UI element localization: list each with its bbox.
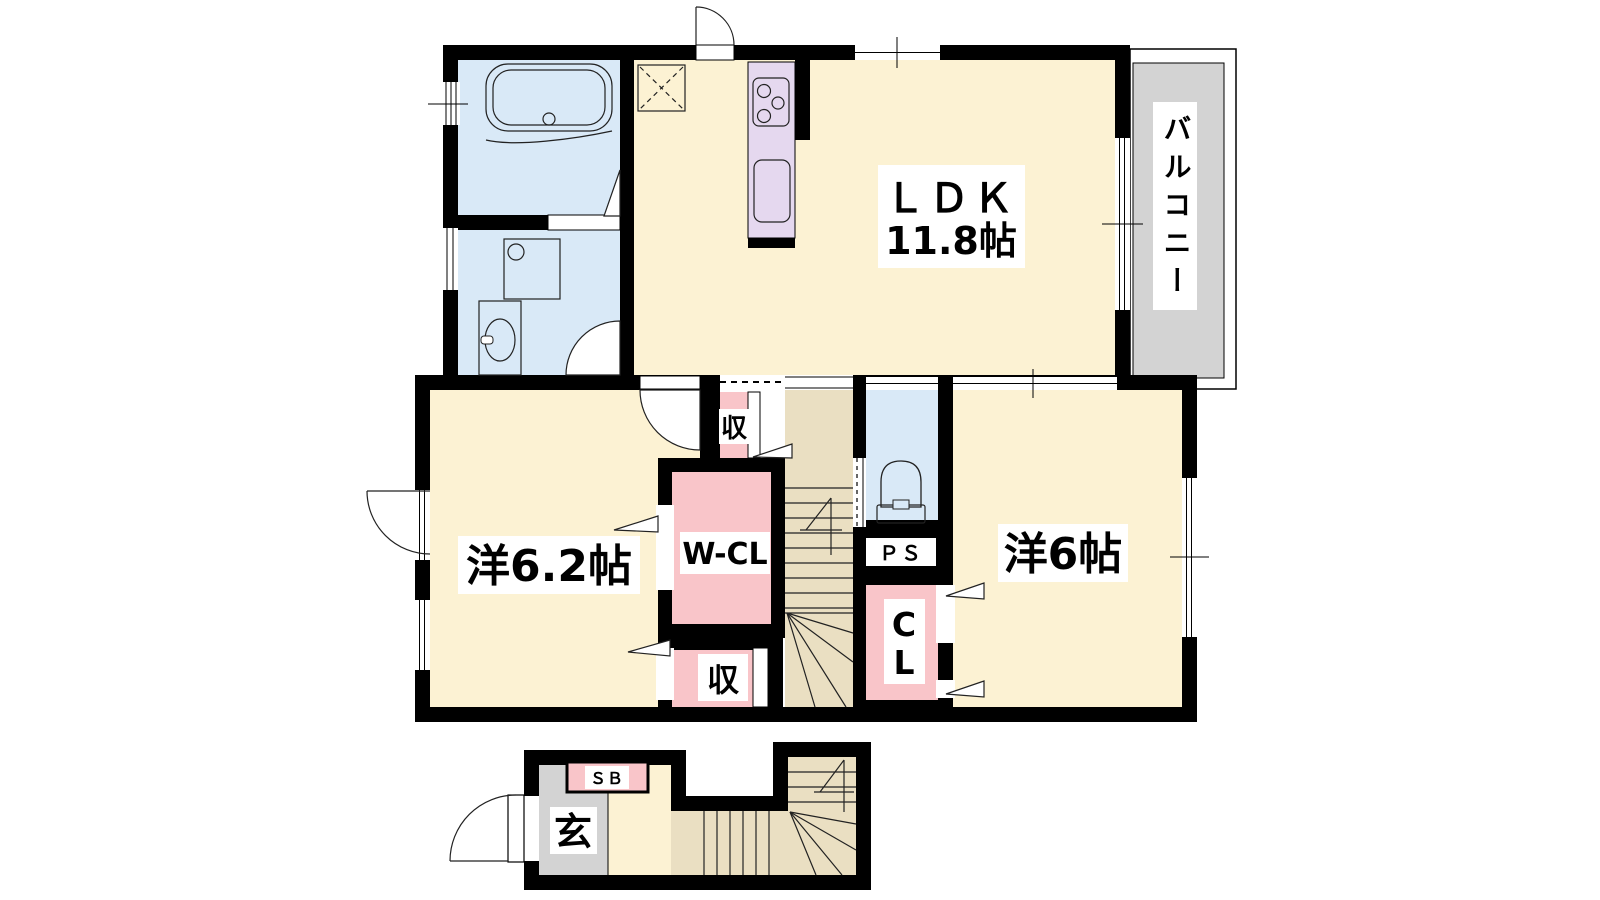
- window-icon: [415, 600, 430, 670]
- wall: [686, 796, 788, 811]
- floor-plan: ＬＤＫ 11.8帖 バルコニー 洋6.2帖 洋6帖 W-CL 収 収 ＰＳ C …: [0, 0, 1600, 900]
- door-leaf: [640, 376, 700, 389]
- wall: [856, 742, 871, 890]
- cl-door-gap: [936, 680, 955, 698]
- wall: [458, 215, 548, 230]
- wall-stub: [700, 375, 720, 460]
- window-icon: [443, 228, 458, 290]
- label-storage-upper: 収: [721, 414, 748, 444]
- wall: [773, 742, 788, 811]
- door-gap: [524, 796, 539, 861]
- label-western6: 洋6帖: [1004, 529, 1123, 580]
- label-balcony: バルコニー: [1160, 114, 1193, 304]
- window-icon: [415, 490, 430, 560]
- floor-plan-canvas: ＬＤＫ 11.8帖 バルコニー 洋6.2帖 洋6帖 W-CL 収 収 ＰＳ C …: [0, 0, 1600, 900]
- storage-lower-door: [753, 648, 768, 707]
- label-western62: 洋6.2帖: [466, 541, 632, 592]
- label-wcl: W-CL: [682, 537, 767, 572]
- label-ps: ＰＳ: [879, 541, 923, 565]
- wall: [853, 375, 866, 460]
- wall: [620, 60, 634, 375]
- wall: [524, 875, 871, 890]
- label-storage-lower: 収: [707, 661, 739, 699]
- door-leaf: [508, 795, 524, 862]
- door-swing-icon: [696, 7, 734, 45]
- door-gap: [696, 45, 734, 60]
- wall-kitchen-stub: [795, 60, 810, 140]
- sliding-door-icon: [853, 458, 866, 527]
- label-shoebox: ＳＢ: [590, 769, 624, 788]
- storage-upper-door: [748, 392, 760, 458]
- label-ldk: ＬＤＫ: [885, 176, 1017, 222]
- wall: [443, 45, 1130, 60]
- door-swing-icon: [450, 795, 516, 861]
- label-entrance: 玄: [554, 810, 592, 854]
- room-ldk-floor: [634, 60, 1115, 375]
- room-bath-floor: [458, 60, 620, 215]
- label-ldk-size: 11.8帖: [885, 219, 1017, 263]
- wcl-door-gap: [656, 505, 674, 590]
- label-cl-l: L: [893, 643, 914, 682]
- stairs-1f-box-floor: [788, 757, 856, 875]
- wall: [671, 750, 686, 811]
- door-gap: [548, 215, 620, 230]
- kitchen-counter: [748, 62, 795, 248]
- label-cl-c: C: [892, 605, 916, 644]
- wall: [415, 707, 1197, 722]
